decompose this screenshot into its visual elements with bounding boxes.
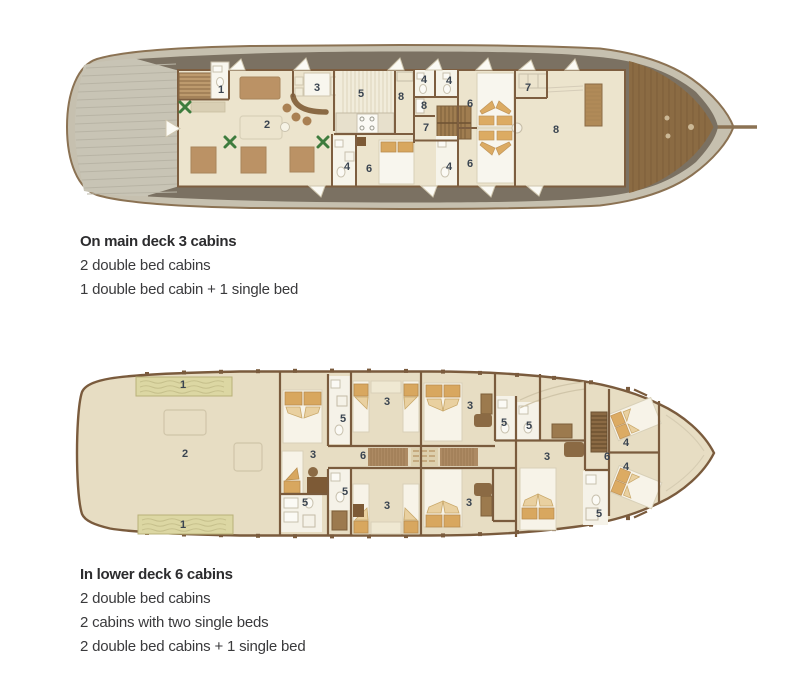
svg-text:8: 8	[553, 124, 559, 136]
svg-text:3: 3	[384, 500, 390, 512]
svg-text:5: 5	[596, 508, 602, 520]
svg-text:4: 4	[446, 75, 453, 87]
svg-text:5: 5	[340, 413, 346, 425]
svg-text:6: 6	[467, 98, 473, 110]
svg-text:5: 5	[526, 420, 532, 432]
svg-text:2 double bed cabins: 2 double bed cabins	[80, 257, 210, 274]
svg-text:4: 4	[623, 437, 630, 449]
svg-text:6: 6	[360, 450, 366, 462]
svg-text:2 double bed cabins: 2 double bed cabins	[80, 590, 210, 607]
svg-text:7: 7	[423, 122, 429, 134]
svg-text:4: 4	[446, 161, 453, 173]
svg-text:6: 6	[467, 158, 473, 170]
svg-text:2 double bed cabins + 1 single: 2 double bed cabins + 1 single bed	[80, 638, 305, 655]
svg-text:3: 3	[384, 396, 390, 408]
svg-text:8: 8	[398, 91, 404, 103]
svg-text:1: 1	[180, 519, 186, 531]
svg-text:3: 3	[466, 497, 472, 509]
svg-text:5: 5	[342, 486, 348, 498]
svg-text:3: 3	[544, 451, 550, 463]
svg-text:6: 6	[366, 163, 372, 175]
svg-text:4: 4	[421, 74, 428, 86]
svg-text:4: 4	[623, 461, 630, 473]
svg-text:3: 3	[310, 449, 316, 461]
svg-text:5: 5	[358, 88, 364, 100]
svg-text:5: 5	[302, 497, 308, 509]
svg-text:6: 6	[604, 451, 610, 463]
svg-text:3: 3	[467, 400, 473, 412]
svg-text:On main deck 3 cabins: On main deck 3 cabins	[80, 233, 236, 250]
svg-text:7: 7	[525, 82, 531, 94]
svg-text:8: 8	[421, 100, 427, 112]
svg-text:1: 1	[218, 84, 224, 96]
svg-text:In lower deck 6 cabins: In lower deck 6 cabins	[80, 566, 233, 583]
svg-text:2 cabins with two single beds: 2 cabins with two single beds	[80, 614, 268, 631]
svg-text:3: 3	[314, 82, 320, 94]
svg-text:2: 2	[264, 119, 270, 131]
svg-text:4: 4	[344, 161, 351, 173]
svg-text:1 double bed cabin + 1 single: 1 double bed cabin + 1 single bed	[80, 281, 298, 298]
svg-text:2: 2	[182, 448, 188, 460]
svg-text:1: 1	[180, 379, 186, 391]
svg-text:5: 5	[501, 417, 507, 429]
